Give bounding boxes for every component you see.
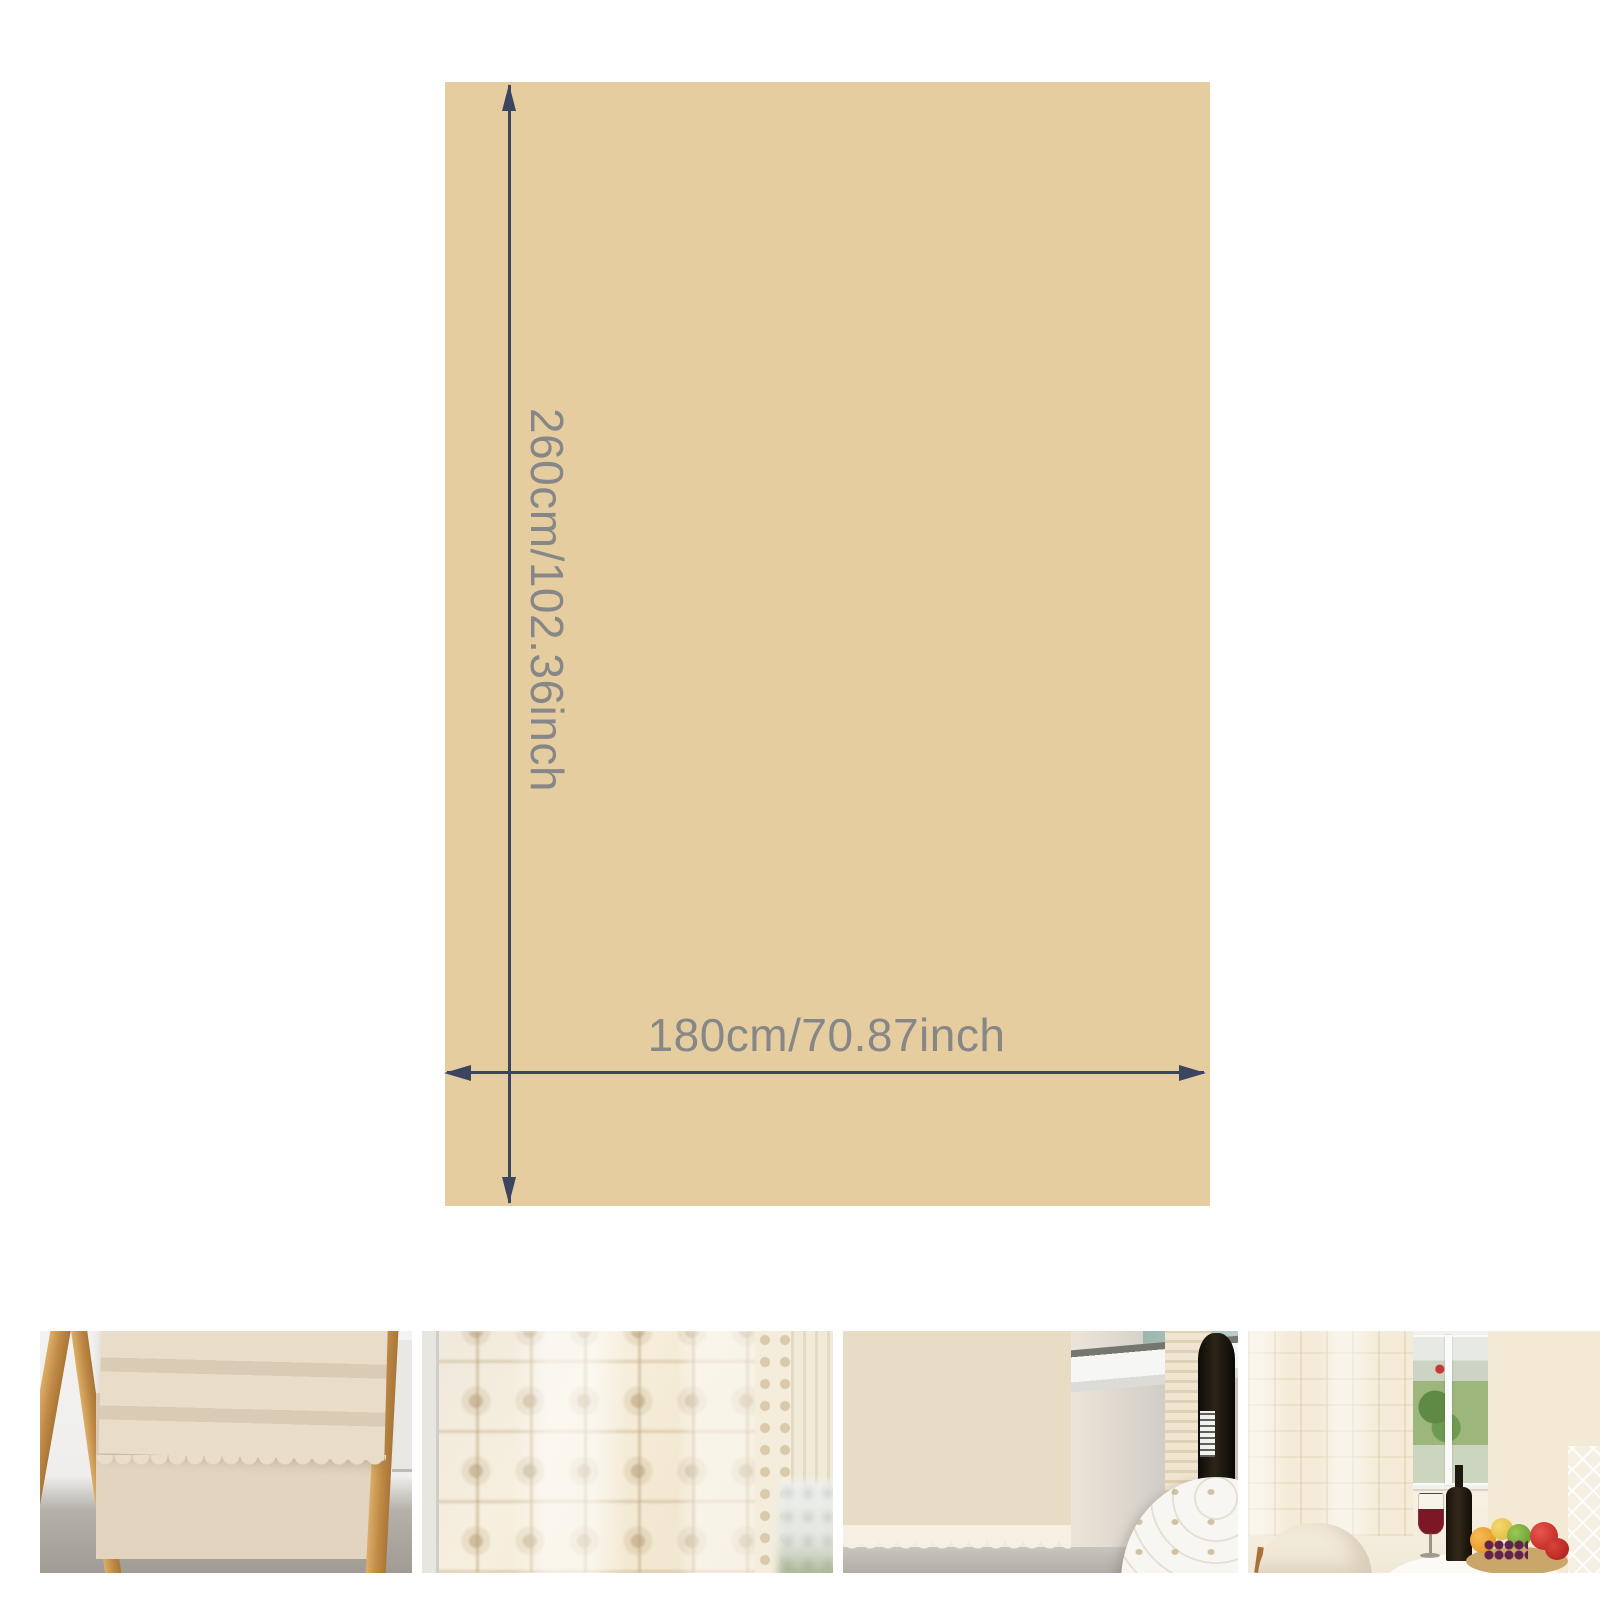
grapes <box>1484 1540 1528 1560</box>
building-windows <box>778 1481 833 1573</box>
wine-glass <box>1418 1493 1442 1559</box>
scalloped-hem <box>96 1547 372 1559</box>
blurred-building-view <box>778 1481 833 1573</box>
scalloped-hem <box>843 1539 1071 1551</box>
bottle-label <box>1200 1411 1215 1457</box>
thumbnail-room-scene <box>1248 1331 1600 1573</box>
thumbnail-curtain-on-ladder <box>40 1331 412 1573</box>
curtain-upper-layer <box>98 1331 387 1461</box>
window-frame-edge <box>422 1331 439 1573</box>
arrow-right-icon <box>1179 1065 1206 1081</box>
bottle-body <box>1446 1487 1472 1561</box>
white-diamond-lace <box>1568 1446 1600 1573</box>
scalloped-hem <box>96 1455 386 1467</box>
wine-bottle <box>1446 1465 1472 1561</box>
thumbnail-lace-closeup <box>422 1331 833 1573</box>
red-apple <box>1545 1538 1569 1560</box>
product-dimension-image: 260cm/102.36inch 180cm/70.87inch <box>0 0 1600 1600</box>
height-dimension-label: 260cm/102.36inch <box>512 90 574 1110</box>
sheer-curtain-left <box>1248 1331 1413 1536</box>
window-mullion <box>1445 1335 1452 1485</box>
crochet-curtain <box>843 1331 1071 1537</box>
thumbnail-curtain-bottle-table <box>843 1331 1238 1573</box>
arrow-left-icon <box>444 1065 471 1081</box>
wine-bottle <box>1198 1333 1235 1479</box>
wine-glass-bowl <box>1418 1493 1444 1535</box>
wine-glass-stem <box>1429 1533 1432 1553</box>
arrow-down-icon <box>502 1177 516 1204</box>
wine-glass-foot <box>1420 1553 1440 1558</box>
curtain-hem <box>843 1525 1071 1541</box>
width-dimension-label: 180cm/70.87inch <box>443 1008 1210 1062</box>
crochet-band-texture <box>98 1331 387 1461</box>
